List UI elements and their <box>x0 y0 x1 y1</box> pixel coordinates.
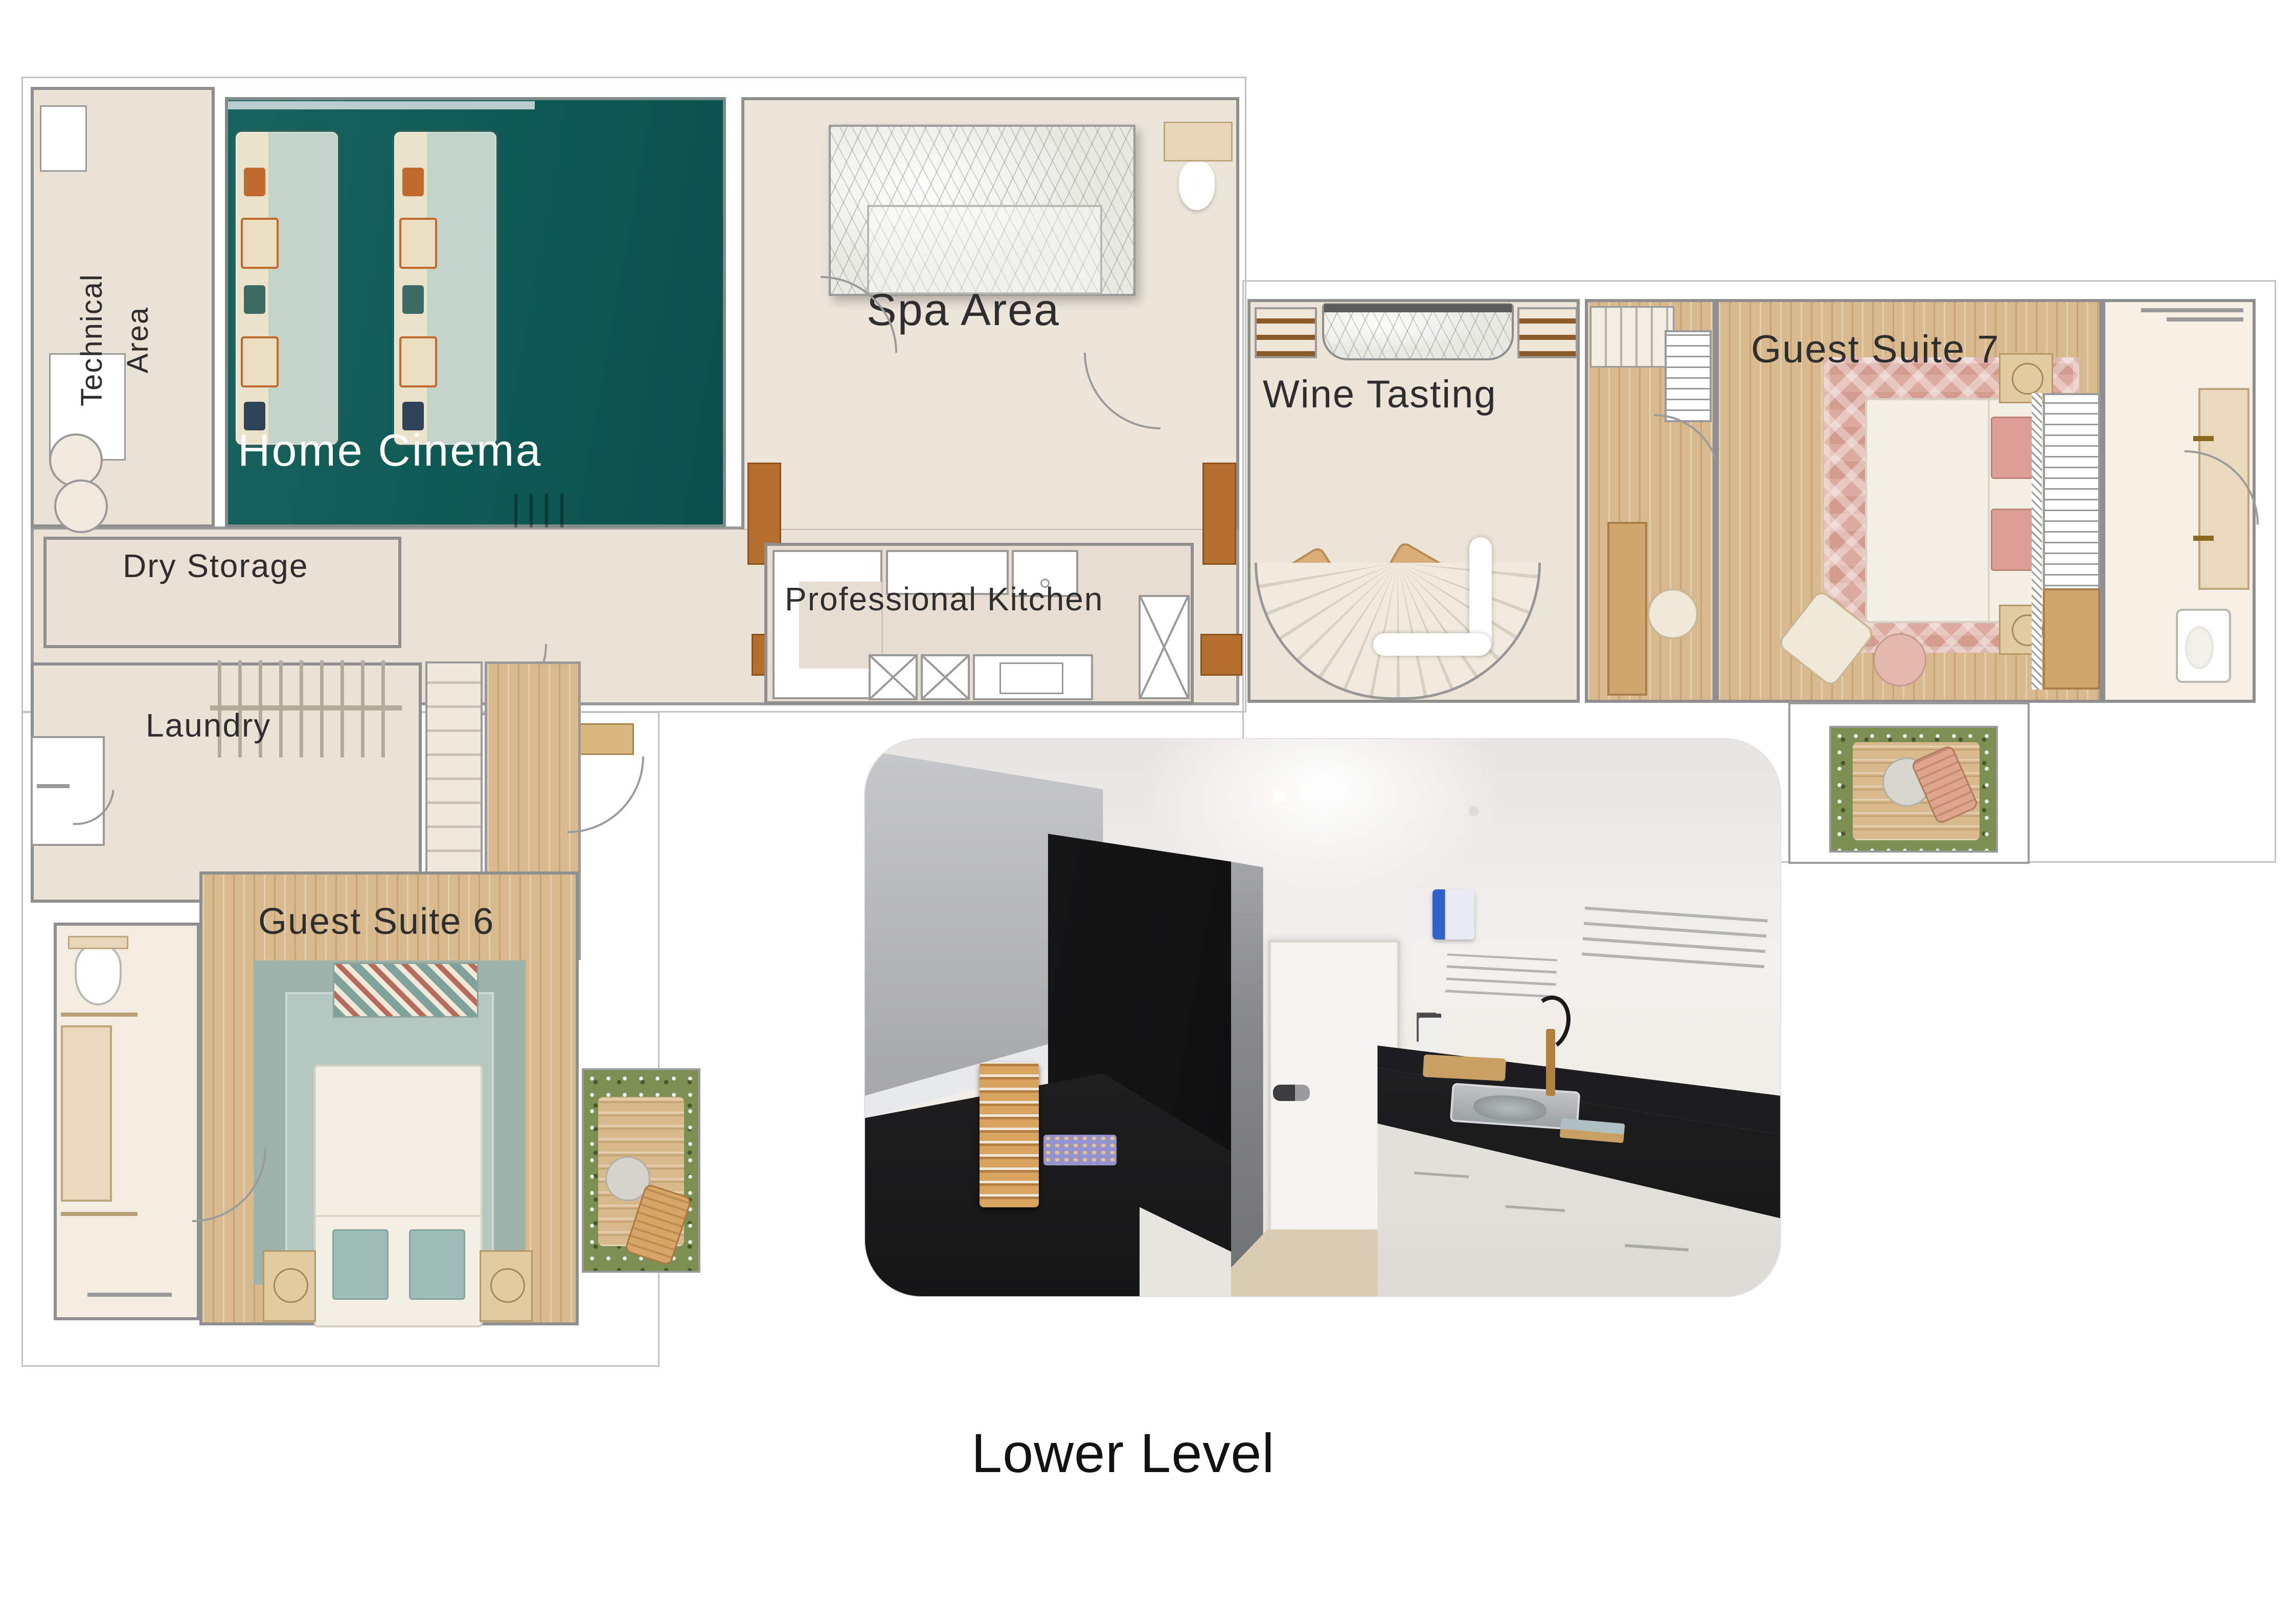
cinema-recliner <box>399 336 437 387</box>
cinema-pillow <box>402 168 424 196</box>
cinema-recliner <box>241 336 279 387</box>
cinema-screen <box>228 101 535 109</box>
kitchen-photo <box>865 739 1780 1296</box>
photo-egg-tray <box>1043 1135 1117 1165</box>
guest7-desk-chair <box>1647 588 1698 639</box>
photo-spotlight <box>1272 789 1286 802</box>
label-home-cinema: Home Cinema <box>238 424 542 476</box>
guest6-vanity <box>61 1025 112 1202</box>
guest6-pillow-1 <box>332 1229 389 1300</box>
kitchen-tray <box>999 662 1063 694</box>
label-dry-storage: Dry Storage <box>123 547 308 585</box>
guest7-sheet-line <box>1988 400 1990 621</box>
guest7-toilet <box>2176 609 2231 683</box>
cinema-sofa-row-2 <box>394 132 496 445</box>
spa-towel <box>1179 162 1215 210</box>
kitchen-appliance-3 <box>1139 595 1190 699</box>
cinema-recliner <box>399 218 437 269</box>
guest6-toilet <box>75 945 122 1005</box>
floor-plan-page: Technical Area Home Cinema Spa Area <box>0 0 2296 1606</box>
cinema-sofa-row-1 <box>236 132 338 445</box>
photo-door-handle <box>1273 1085 1310 1102</box>
photo-faucet-brass <box>1546 1029 1555 1096</box>
label-spa-area: Spa Area <box>867 284 1060 336</box>
caption-lower-level: Lower Level <box>971 1421 1275 1485</box>
label-kitchen: Professional Kitchen <box>785 580 1103 618</box>
room-guest6-bath <box>54 923 200 1320</box>
guest6-headboard-art <box>333 962 479 1018</box>
label-technical-line2: Area <box>115 161 161 519</box>
guest7-bed <box>1865 398 2045 623</box>
spa-side-bench <box>1164 122 1233 162</box>
guest6-terrace <box>582 1068 700 1273</box>
guest7-wardrobe-door <box>2032 393 2042 690</box>
cinema-pillow <box>244 285 265 314</box>
photo-utensil-cup <box>1419 1018 1443 1051</box>
room-guest7-bath <box>2102 299 2256 703</box>
wine-counter <box>1322 303 1514 360</box>
guest7-pouf <box>1873 633 1926 686</box>
room-wine-tasting <box>1247 299 1580 703</box>
wine-rack-right <box>1517 307 1578 358</box>
guest7-wardrobe <box>2043 393 2100 598</box>
guest7-console <box>1607 522 1647 696</box>
guest6-sheet-line <box>316 1215 481 1217</box>
wine-rack-left <box>1255 307 1317 358</box>
photo-cutting-board <box>1423 1054 1506 1081</box>
spa-bench-right <box>1202 463 1236 565</box>
guest6-nightstand-left <box>263 1250 316 1322</box>
label-laundry: Laundry <box>146 706 271 744</box>
cinema-recliner <box>241 218 279 269</box>
label-technical-line1: Technical <box>69 161 115 519</box>
guest7-bath-shelf <box>2141 308 2243 312</box>
spa-stool-right <box>1200 634 1242 676</box>
guest6-towel-bar <box>87 1293 172 1297</box>
guest6-pillow-2 <box>409 1229 465 1300</box>
stairs-guest7-top <box>1590 306 1674 368</box>
label-technical-area: Technical Area <box>69 161 166 519</box>
cinema-pillow <box>402 285 424 314</box>
guest6-bed <box>314 1065 483 1327</box>
guest7-toilet-bowl <box>2185 626 2214 669</box>
guest7-wardrobe-wood <box>2043 588 2100 690</box>
label-guest-suite-7: Guest Suite 7 <box>1751 327 2000 372</box>
photo-shelf-small <box>1445 954 1557 998</box>
guest6-lamp-left <box>274 1268 308 1303</box>
vanity-tap-1 <box>2193 436 2214 441</box>
guest6-toilet-tank <box>68 936 128 949</box>
staircase-curved <box>1255 563 1541 700</box>
guest7-lamp-top <box>2012 363 2043 395</box>
kitchen-counter-left <box>772 550 882 699</box>
label-guest-suite-6: Guest Suite 6 <box>258 901 494 943</box>
laundry-shower-room <box>31 736 105 846</box>
wine-counter-edge <box>1324 304 1512 312</box>
cinema-pillow <box>244 168 265 196</box>
photo-shelf-large <box>1582 900 1768 969</box>
guest7-bath-shelf2 <box>2167 317 2243 322</box>
kitchen-counter-bottom <box>973 654 1093 700</box>
guest6-shelf <box>61 1013 138 1017</box>
kitchen-appliance-2 <box>921 654 970 700</box>
label-wine-tasting: Wine Tasting <box>1263 372 1497 417</box>
guest6-nightstand-right <box>480 1250 533 1322</box>
stair-railing-horizontal <box>1373 633 1491 656</box>
photo-egg-cartons <box>980 1062 1039 1207</box>
cinema-steps <box>514 494 565 527</box>
kitchen-appliance-1 <box>869 654 918 700</box>
room-kitchen <box>764 543 1194 704</box>
guest7-terrace <box>1829 726 1998 853</box>
guest7-closet <box>1665 330 1712 422</box>
photo-blue-device <box>1433 889 1474 939</box>
guest6-lamp-right <box>490 1268 525 1303</box>
spa-pool-step <box>867 205 1102 294</box>
guest6-shelf-2 <box>61 1212 138 1216</box>
